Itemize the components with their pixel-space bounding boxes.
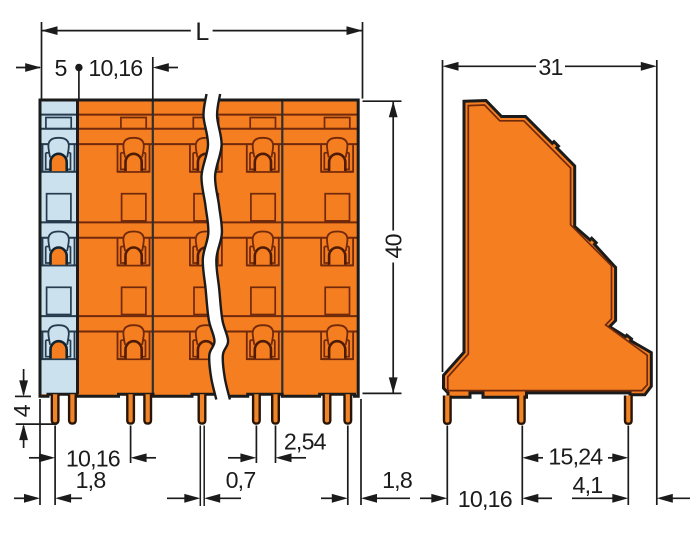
svg-text:4: 4 [9, 404, 35, 417]
svg-text:10,16: 10,16 [458, 486, 512, 512]
svg-text:2,54: 2,54 [284, 428, 327, 454]
svg-text:4,1: 4,1 [572, 472, 602, 498]
svg-text:40: 40 [380, 234, 406, 258]
svg-text:5: 5 [54, 55, 66, 81]
svg-text:1,8: 1,8 [382, 467, 412, 493]
svg-text:1,8: 1,8 [76, 467, 106, 493]
svg-text:31: 31 [538, 54, 562, 80]
svg-text:10,16: 10,16 [88, 55, 142, 81]
svg-text:15,24: 15,24 [548, 443, 603, 469]
svg-text:L: L [195, 18, 209, 46]
svg-text:0,7: 0,7 [226, 467, 256, 493]
